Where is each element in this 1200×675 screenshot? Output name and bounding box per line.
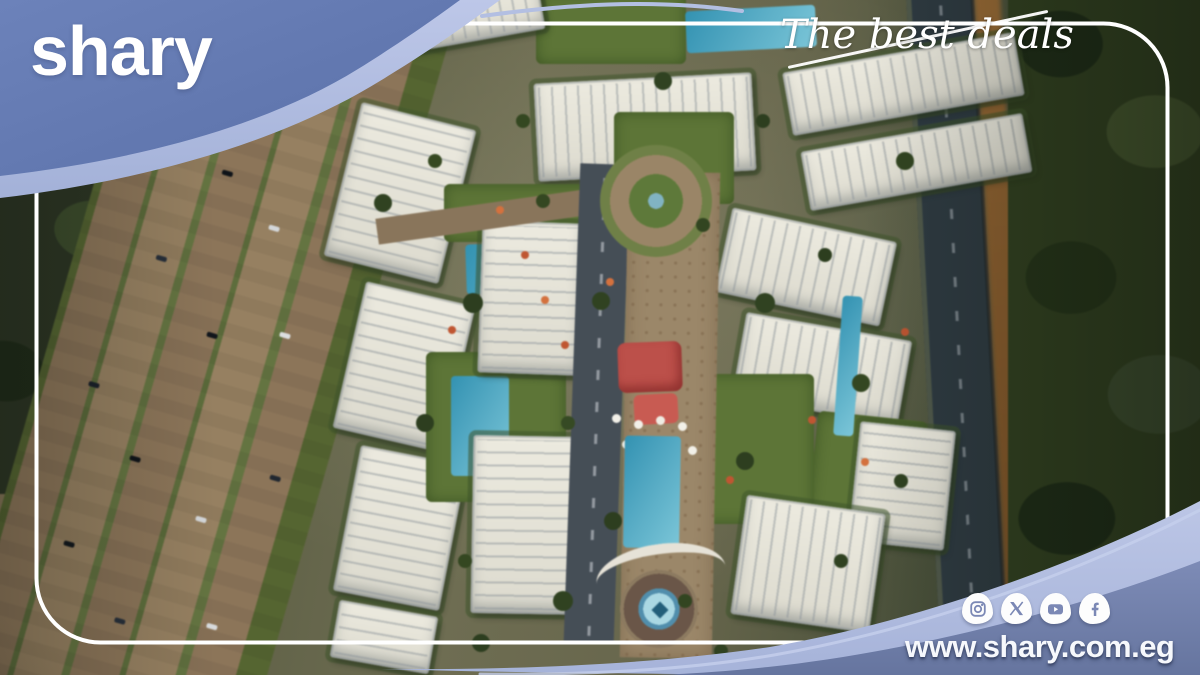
social-icons <box>905 593 1167 624</box>
tagline: The best deals <box>780 12 1074 58</box>
brand-logo: shary <box>30 6 212 97</box>
instagram-icon[interactable] <box>962 593 993 624</box>
x-icon[interactable] <box>1001 593 1032 624</box>
promo-banner: shary The best deals <box>0 0 1200 675</box>
youtube-icon[interactable] <box>1040 593 1071 624</box>
facebook-icon[interactable] <box>1079 593 1110 624</box>
website-url[interactable]: www.shary.com.eg <box>905 629 1167 665</box>
footer: www.shary.com.eg <box>905 593 1167 665</box>
